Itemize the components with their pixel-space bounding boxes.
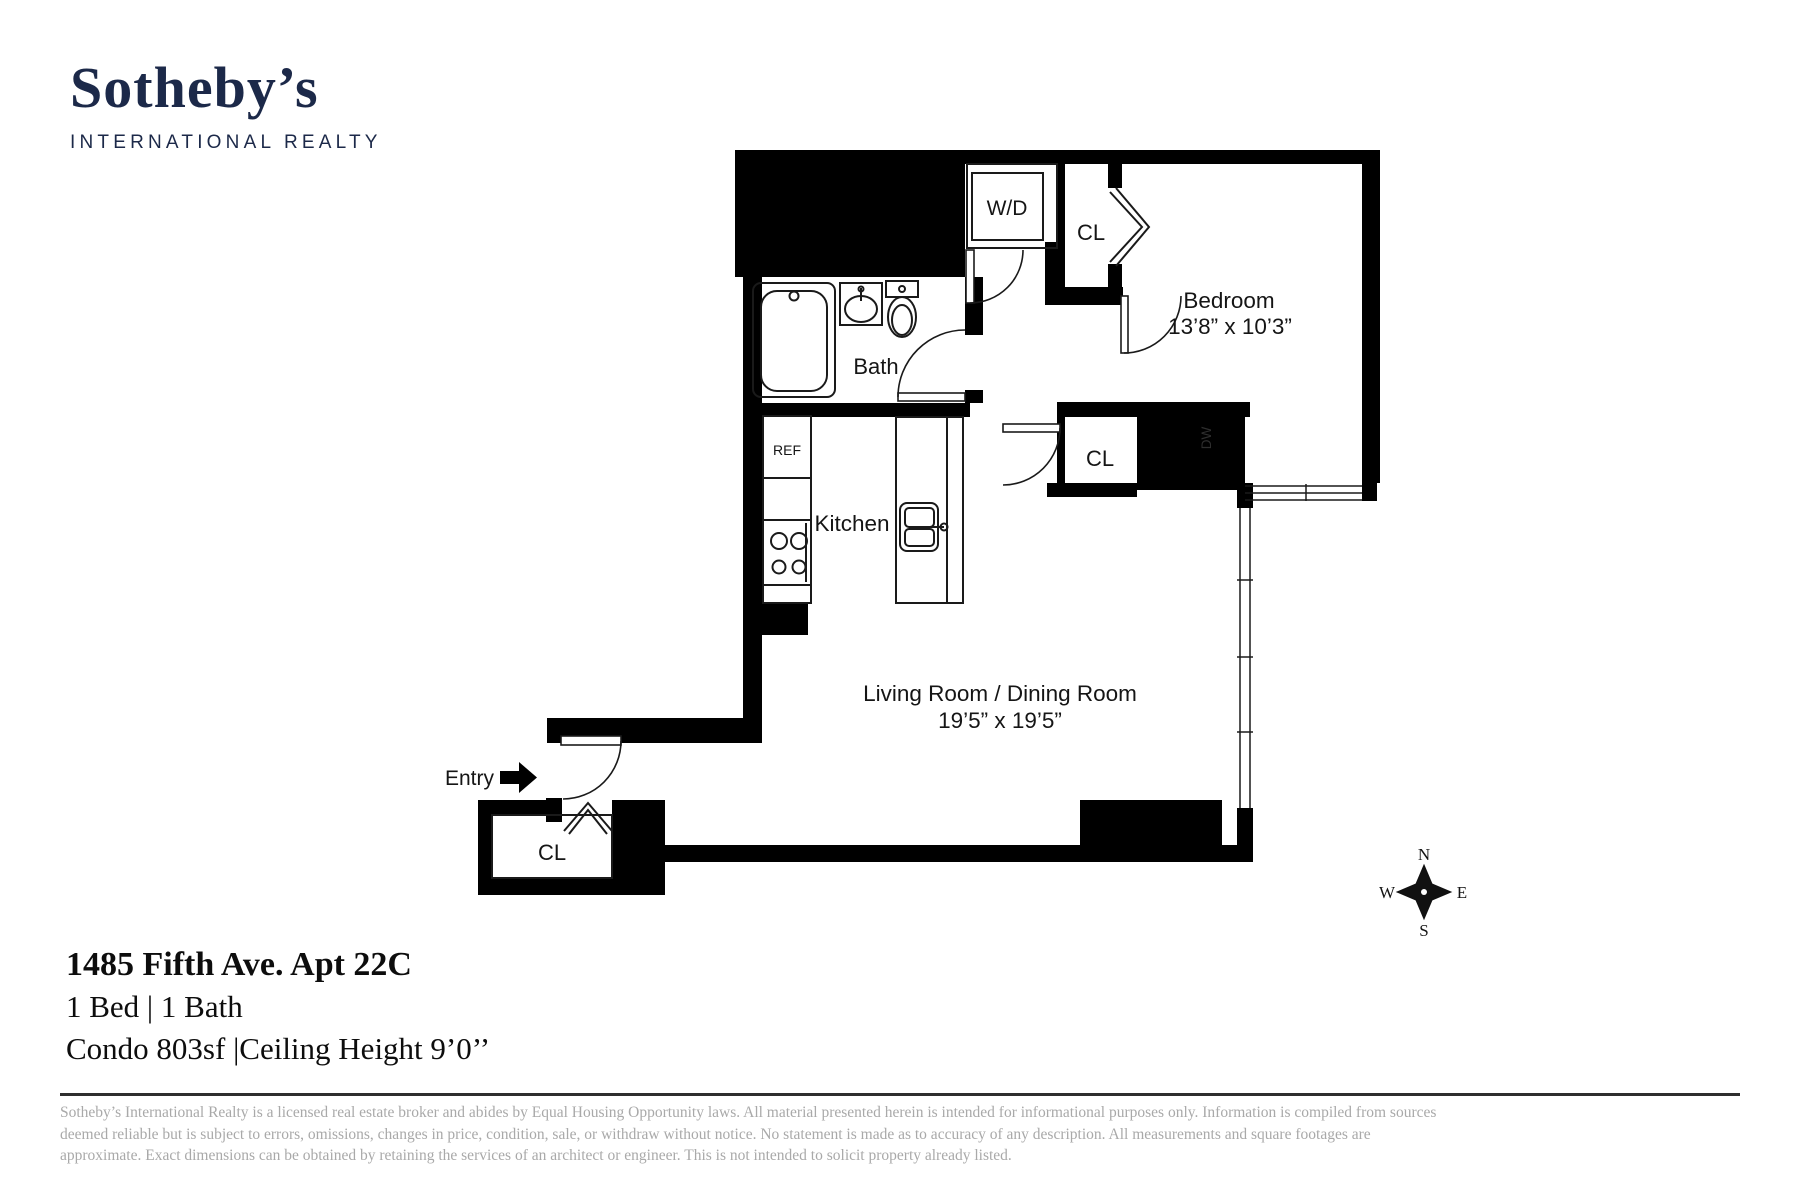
compass-rose-icon: N S E W — [1379, 845, 1467, 940]
property-beds-baths: 1 Bed | 1 Bath — [66, 986, 490, 1028]
disclaimer-line-2: deemed reliable but is subject to errors… — [60, 1124, 1750, 1146]
disclaimer-line-3: approximate. Exact dimensions can be obt… — [60, 1145, 1750, 1167]
entry-door-leaf — [561, 736, 621, 745]
bedroom-window — [1245, 484, 1362, 501]
bedroom-label: Bedroom — [1183, 288, 1274, 313]
toilet — [886, 281, 918, 297]
bath-door-leaf — [898, 393, 965, 401]
stove-box — [763, 520, 811, 585]
kitchen-label: Kitchen — [814, 511, 889, 536]
closet-bottom-label: CL — [538, 840, 566, 865]
property-summary: 1485 Fifth Ave. Apt 22C 1 Bed | 1 Bath C… — [66, 944, 490, 1070]
bifold-door-top-closet — [1116, 188, 1149, 266]
ref-label: REF — [773, 442, 801, 458]
solid-core-block — [735, 150, 965, 277]
dw-block — [1137, 412, 1245, 490]
disclaimer: Sotheby’s International Realty is a lice… — [60, 1102, 1750, 1167]
entry-label: Entry — [445, 767, 495, 790]
living-room-dims: 19’5” x 19’5” — [938, 708, 1062, 733]
wd-label: W/D — [987, 197, 1028, 220]
compass-s: S — [1419, 921, 1428, 940]
property-address: 1485 Fifth Ave. Apt 22C — [66, 944, 490, 986]
footer-divider — [60, 1093, 1740, 1096]
compass-e: E — [1457, 883, 1467, 902]
mid-closet-door-leaf — [1003, 424, 1060, 432]
wd-door-leaf — [966, 250, 974, 303]
closet-top-label: CL — [1077, 220, 1105, 245]
property-details: Condo 803sf |Ceiling Height 9’0’’ — [66, 1028, 490, 1070]
living-room-window — [1237, 508, 1253, 808]
walls — [478, 150, 1380, 895]
dw-label: DW — [1199, 427, 1214, 450]
bifold-door-bottom-closet — [564, 803, 612, 831]
bedroom-dims: 13’8” x 10’3” — [1168, 314, 1292, 339]
floorplan-page: Sotheby’s INTERNATIONAL REALTY — [0, 0, 1800, 1200]
compass-n: N — [1418, 845, 1430, 864]
compass-w: W — [1379, 883, 1396, 902]
closet-mid-label: CL — [1086, 446, 1114, 471]
bath-label: Bath — [853, 354, 898, 379]
entry-arrow-icon — [500, 762, 537, 793]
living-room-label: Living Room / Dining Room — [863, 681, 1137, 706]
bottom-right-block — [1080, 800, 1222, 862]
bedroom-door-leaf — [1121, 296, 1128, 353]
disclaimer-line-1: Sotheby’s International Realty is a lice… — [60, 1102, 1750, 1124]
